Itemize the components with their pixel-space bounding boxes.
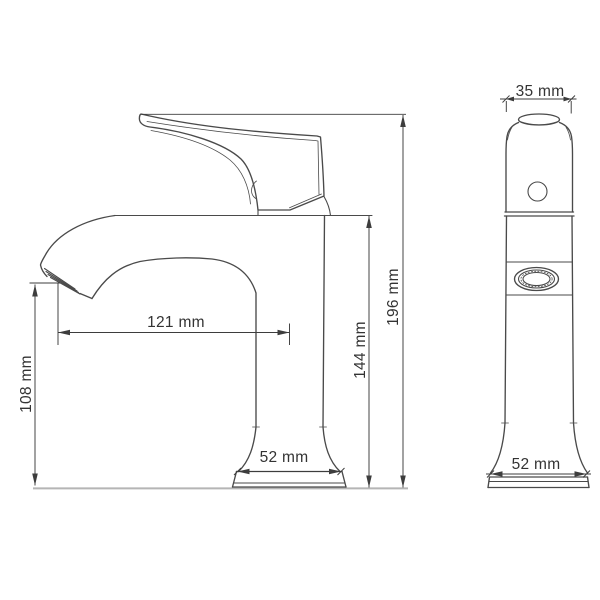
dim-label-base-width-side: 52 mm <box>260 449 309 466</box>
dim-label-body-height: 144 mm <box>352 321 369 379</box>
arrowhead <box>400 476 406 488</box>
faucet-side-view <box>41 114 373 487</box>
dim-label-handle-width: 35 mm <box>516 83 565 100</box>
arrowhead <box>366 216 372 228</box>
aerator-hatch-line <box>51 278 81 295</box>
spout-inner-curve-body-left <box>92 258 256 472</box>
faucet-technical-drawing: 196 mm 144 mm 108 mm 121 mm 52 mm <box>0 0 600 600</box>
arrowhead <box>400 115 406 127</box>
spout-outer-curve <box>41 216 116 277</box>
base-plate-left <box>233 472 237 488</box>
handle-corner-arc <box>324 197 331 216</box>
arrowhead <box>58 330 70 336</box>
faucet-front-view <box>488 114 589 488</box>
aerator-hatch-line <box>46 272 77 292</box>
dim-label-outlet-height: 108 mm <box>18 355 35 413</box>
spout-tip-underside <box>80 294 92 299</box>
arrowhead <box>366 476 372 488</box>
arrowhead <box>32 285 38 297</box>
base-plate-right <box>588 477 590 488</box>
arrowhead <box>32 474 38 486</box>
aerator-hatch-line <box>48 275 79 293</box>
column-right-edge <box>572 216 588 473</box>
handle-button <box>528 182 547 201</box>
handle-inner-top-line <box>147 122 319 195</box>
handle-left-shoulder <box>506 123 519 213</box>
handle-side-view <box>139 114 330 216</box>
base-plate-left <box>488 477 490 488</box>
handle-inner-diagonal <box>290 194 322 208</box>
spout-aerator <box>45 269 81 295</box>
base-plate-right <box>342 472 346 488</box>
arrowhead <box>278 330 290 336</box>
column-left-edge <box>491 216 507 473</box>
aerator-screen <box>523 273 550 286</box>
handle-top-ellipse <box>519 114 560 125</box>
drawing-canvas: 196 mm 144 mm 108 mm 121 mm 52 mm <box>0 0 600 600</box>
dim-label-base-width-front: 52 mm <box>512 456 561 473</box>
base-plate-side <box>233 472 347 488</box>
handle-inner-neck-line <box>151 131 251 205</box>
base-plate-front <box>488 477 589 488</box>
dim-label-spout-reach: 121 mm <box>147 314 205 331</box>
handle-right-shoulder <box>560 123 573 213</box>
body-right-edge <box>323 216 340 472</box>
aerator-hatch-line <box>45 269 76 290</box>
aerator-dotted-ring <box>521 271 552 286</box>
aerator-front <box>515 268 559 291</box>
dim-label-total-height: 196 mm <box>385 268 402 326</box>
